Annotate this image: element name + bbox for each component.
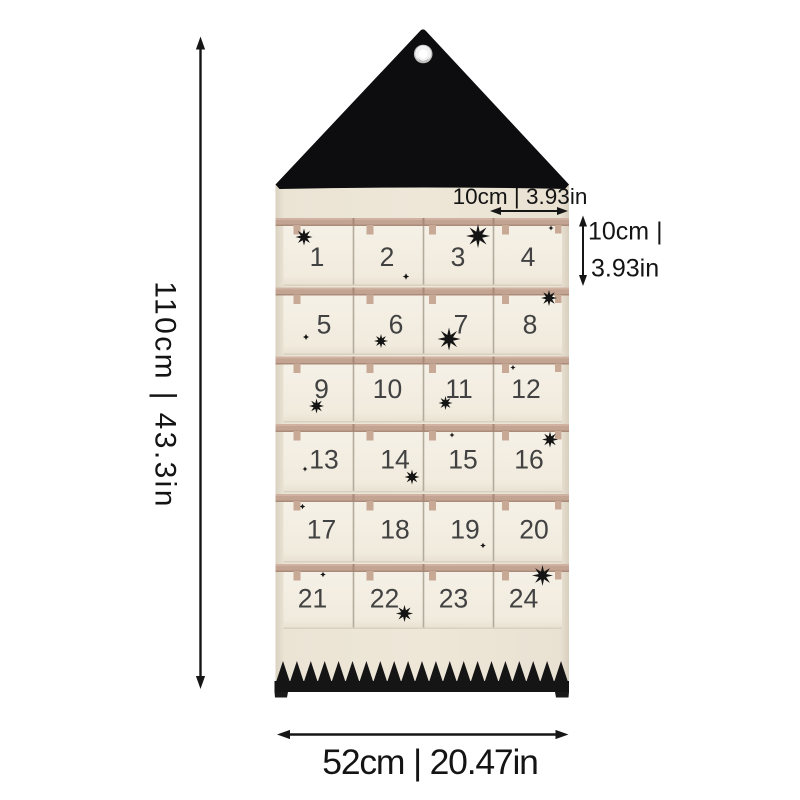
- svg-text:8: 8: [523, 310, 538, 340]
- svg-text:23: 23: [439, 584, 468, 614]
- svg-text:17: 17: [307, 515, 336, 545]
- svg-text:52cm | 20.47in: 52cm | 20.47in: [322, 742, 537, 782]
- svg-text:7: 7: [454, 310, 469, 340]
- svg-text:3: 3: [451, 242, 466, 272]
- svg-text:2: 2: [380, 242, 395, 272]
- svg-text:12: 12: [511, 374, 540, 404]
- svg-text:16: 16: [514, 445, 543, 475]
- svg-text:21: 21: [298, 584, 327, 614]
- svg-text:1: 1: [310, 242, 325, 272]
- svg-text:22: 22: [370, 584, 399, 614]
- svg-text:13: 13: [309, 445, 338, 475]
- svg-text:4: 4: [521, 242, 536, 272]
- svg-text:10cm |: 10cm |: [588, 218, 663, 246]
- svg-text:20: 20: [519, 515, 548, 545]
- svg-text:110cm | 43.3in: 110cm | 43.3in: [149, 281, 182, 509]
- svg-text:24: 24: [509, 584, 538, 614]
- svg-text:15: 15: [448, 445, 477, 475]
- svg-text:19: 19: [450, 515, 479, 545]
- svg-text:14: 14: [380, 445, 409, 475]
- svg-text:10cm | 3.93in: 10cm | 3.93in: [453, 184, 588, 209]
- svg-text:10: 10: [373, 374, 402, 404]
- svg-text:18: 18: [380, 515, 409, 545]
- svg-text:3.93in: 3.93in: [591, 255, 659, 283]
- svg-text:6: 6: [389, 310, 404, 340]
- svg-text:5: 5: [317, 310, 332, 340]
